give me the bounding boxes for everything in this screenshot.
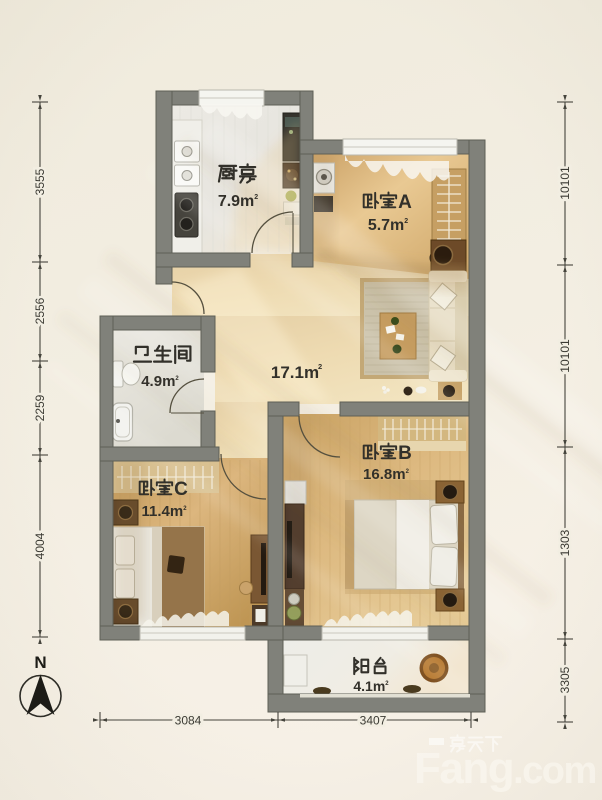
svg-text:C: C (174, 479, 188, 500)
svg-text:N: N (34, 653, 46, 672)
svg-text:2556: 2556 (33, 297, 47, 324)
svg-text:17.1m: 17.1m (271, 363, 319, 382)
svg-text:5.7m2: 5.7m2 (368, 217, 408, 234)
svg-text:Fang.com: Fang.com (414, 744, 596, 793)
svg-text:3555: 3555 (33, 168, 47, 195)
svg-text:1303: 1303 (558, 529, 572, 556)
svg-text:16.8m2: 16.8m2 (363, 466, 410, 483)
svg-text:10101: 10101 (558, 166, 572, 200)
svg-text:7.9m2: 7.9m2 (218, 193, 258, 210)
svg-text:4.1m2: 4.1m2 (353, 678, 389, 694)
svg-text:3084: 3084 (175, 714, 202, 728)
svg-text:10101: 10101 (558, 339, 572, 373)
svg-text:11.4m2: 11.4m2 (141, 503, 187, 520)
svg-text:3407: 3407 (360, 714, 387, 728)
svg-text:B: B (398, 443, 412, 464)
svg-text:3305: 3305 (558, 666, 572, 693)
svg-text:2259: 2259 (33, 394, 47, 421)
svg-text:4004: 4004 (33, 532, 47, 559)
svg-text:2: 2 (318, 362, 322, 371)
svg-text:4.9m2: 4.9m2 (141, 373, 179, 390)
svg-text:A: A (398, 192, 412, 213)
